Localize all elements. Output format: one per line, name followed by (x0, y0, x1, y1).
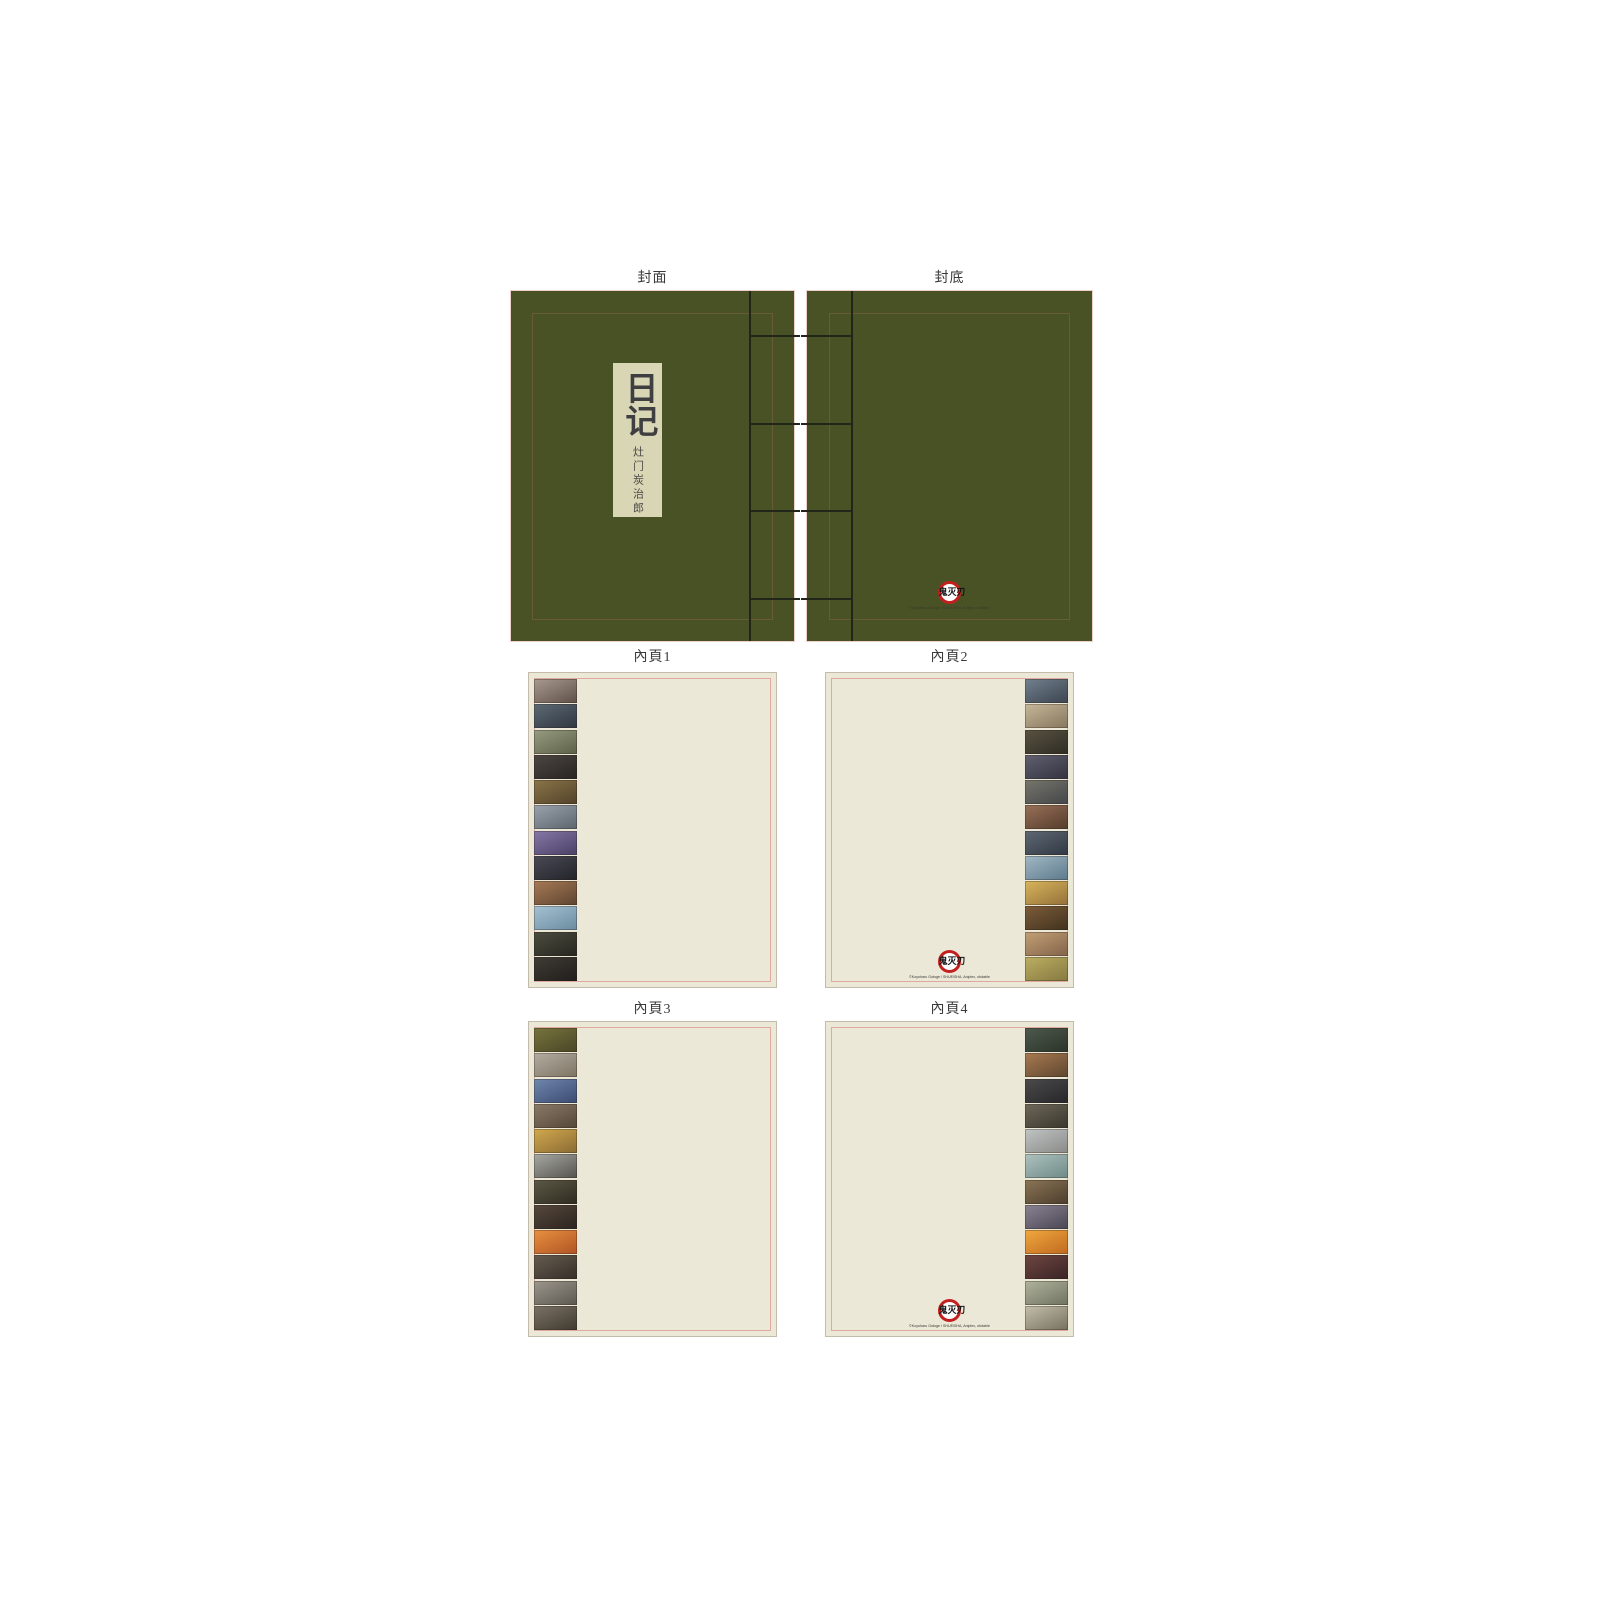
film-frame-dark-tan-demon (1025, 1180, 1068, 1204)
film-frame-gray-round-creature (534, 1053, 577, 1077)
inner-page-4-label: 內頁4 (825, 1001, 1074, 1019)
binding-stitch-horizontal (749, 423, 800, 425)
film-frame-zenitsu-blue-background (534, 1079, 577, 1103)
film-frame-tanjiro-closeup-teal-dark (534, 704, 577, 728)
back-cover: 鬼灭刃 ©Koyoharu Gotoge / SHUEISHA, Aniplex… (807, 291, 1092, 641)
film-frame-gray-portrait-pair (1025, 780, 1068, 804)
logo-block: 鬼灭刃 ©Koyoharu Gotoge / SHUEISHA, Aniplex… (826, 950, 1073, 984)
design-sheet: 封面 封底 日记 灶门炭治郎 鬼灭刃 ©Koyoharu Gotoge / SH… (0, 0, 1600, 1600)
inner-page-1-label: 內頁1 (528, 649, 777, 667)
film-frame-warm-brown-tanjiro-face (534, 881, 577, 905)
film-frame-two-kimono-figures-light-scene (534, 679, 577, 703)
film-frame-urokodaki-hat-dark (1025, 730, 1068, 754)
film-frame-tanjiro-snow-blossom (1025, 1129, 1068, 1153)
film-frame-tamayo-dark-portrait (1025, 755, 1068, 779)
film-frame-blue-sky-boys (534, 906, 577, 930)
film-frame-brown-figures-pair (534, 1104, 577, 1128)
film-frame-pale-white-haired-figure (534, 1154, 577, 1178)
binding-stitch-horizontal (749, 510, 800, 512)
film-frame-tanjiro-dark-shocked (534, 1205, 577, 1229)
film-frame-giyu-dark-portrait (1025, 1079, 1068, 1103)
film-frame-red-fox-mask-forest (534, 780, 577, 804)
binding-stitch-horizontal (801, 335, 853, 337)
film-strip (1025, 679, 1068, 981)
film-frame-kanao-dark-red-scene (1025, 1255, 1068, 1279)
front-cover-label: 封面 (511, 270, 794, 288)
film-strip (534, 679, 577, 981)
binding-stitch-vertical (749, 291, 751, 641)
logo-characters: 鬼灭刃 (936, 588, 968, 597)
front-cover: 日记 灶门炭治郎 (511, 291, 794, 641)
film-frame-pale-lavender-figure (1025, 1205, 1068, 1229)
film-frame-purple-flashback-figure (534, 831, 577, 855)
copyright-text: ©Koyoharu Gotoge / SHUEISHA, Aniplex, uf… (894, 1324, 1005, 1328)
back-cover-label: 封底 (807, 270, 1092, 288)
film-frame-tanjiro-warm-closeup (1025, 805, 1068, 829)
kimetsu-logo-icon: 鬼灭刃 (938, 581, 961, 604)
inner-page-2-label: 內頁2 (825, 649, 1074, 667)
binding-stitch-horizontal (749, 335, 800, 337)
binding-stitch-horizontal (749, 598, 800, 600)
film-frame-tanjiro-grin-blue-gray (1025, 679, 1068, 703)
author-name: 灶门炭治郎 (630, 446, 646, 516)
film-frame-gray-white-demon (534, 1281, 577, 1305)
logo-block: 鬼灭刃 ©Koyoharu Gotoge / SHUEISHA, Aniplex… (826, 1299, 1073, 1333)
film-strip (1025, 1028, 1068, 1330)
film-frame-inosuke-boar-head-dark (534, 1255, 577, 1279)
film-frame-rainy-gray-doorway (534, 805, 577, 829)
binding-stitch-horizontal (801, 598, 853, 600)
kimetsu-logo-icon: 鬼灭刃 (938, 1299, 961, 1322)
title-slip: 日记 灶门炭治郎 (613, 363, 662, 517)
film-frame-warm-interior-tanjiro (1025, 906, 1068, 930)
binding-stitch-horizontal (801, 510, 853, 512)
film-frame-sky-tanjiro-wood-box (1025, 856, 1068, 880)
film-frame-green-brown-action-scene (534, 1028, 577, 1052)
film-frame-dark-room-checkered-haori (534, 932, 577, 956)
film-frame-inosuke-orange-surprised (1025, 1230, 1068, 1254)
film-frame-giyu-dark-blue-snow (1025, 831, 1068, 855)
film-frame-boar-mask-closeup (534, 1306, 577, 1330)
inner-page-4: 鬼灭刃 ©Koyoharu Gotoge / SHUEISHA, Aniplex… (825, 1021, 1074, 1337)
inner-page-1 (528, 672, 777, 988)
film-frame-dark-scene-faint-circle (534, 755, 577, 779)
diary-title: 日记 (620, 371, 655, 437)
film-frame-shinobu-by-water (1025, 1154, 1068, 1178)
film-frame-sleeping-pale-face (1025, 1104, 1068, 1128)
film-frame-white-mask-dark-girl (534, 856, 577, 880)
inner-page-3 (528, 1021, 777, 1337)
cover-inner-border (829, 313, 1070, 620)
film-frame-zenitsu-tanjiro-warm-closeup (1025, 1053, 1068, 1077)
film-frame-dark-demon-figure (534, 1180, 577, 1204)
film-frame-zenitsu-yellow-tanjiro (1025, 881, 1068, 905)
copyright-text: ©Koyoharu Gotoge / SHUEISHA, Aniplex, uf… (894, 975, 1005, 979)
logo-characters: 鬼灭刃 (936, 957, 968, 966)
inner-page-3-label: 內頁3 (528, 1001, 777, 1019)
film-frame-dark-rain-green-haori (1025, 1028, 1068, 1052)
film-frame-very-dark-frame (534, 957, 577, 981)
film-frame-orange-scream-scene (534, 1230, 577, 1254)
film-frame-village-outdoor-green (534, 730, 577, 754)
film-strip (534, 1028, 577, 1330)
film-frame-light-scene-crow-figures (1025, 704, 1068, 728)
logo-characters: 鬼灭刃 (936, 1306, 968, 1315)
kimetsu-logo-icon: 鬼灭刃 (938, 950, 961, 973)
film-frame-zenitsu-bright-yellow (534, 1129, 577, 1153)
inner-page-2: 鬼灭刃 ©Koyoharu Gotoge / SHUEISHA, Aniplex… (825, 672, 1074, 988)
copyright-text: ©Koyoharu Gotoge / SHUEISHA, Aniplex, uf… (885, 606, 1013, 610)
binding-stitch-horizontal (801, 423, 853, 425)
